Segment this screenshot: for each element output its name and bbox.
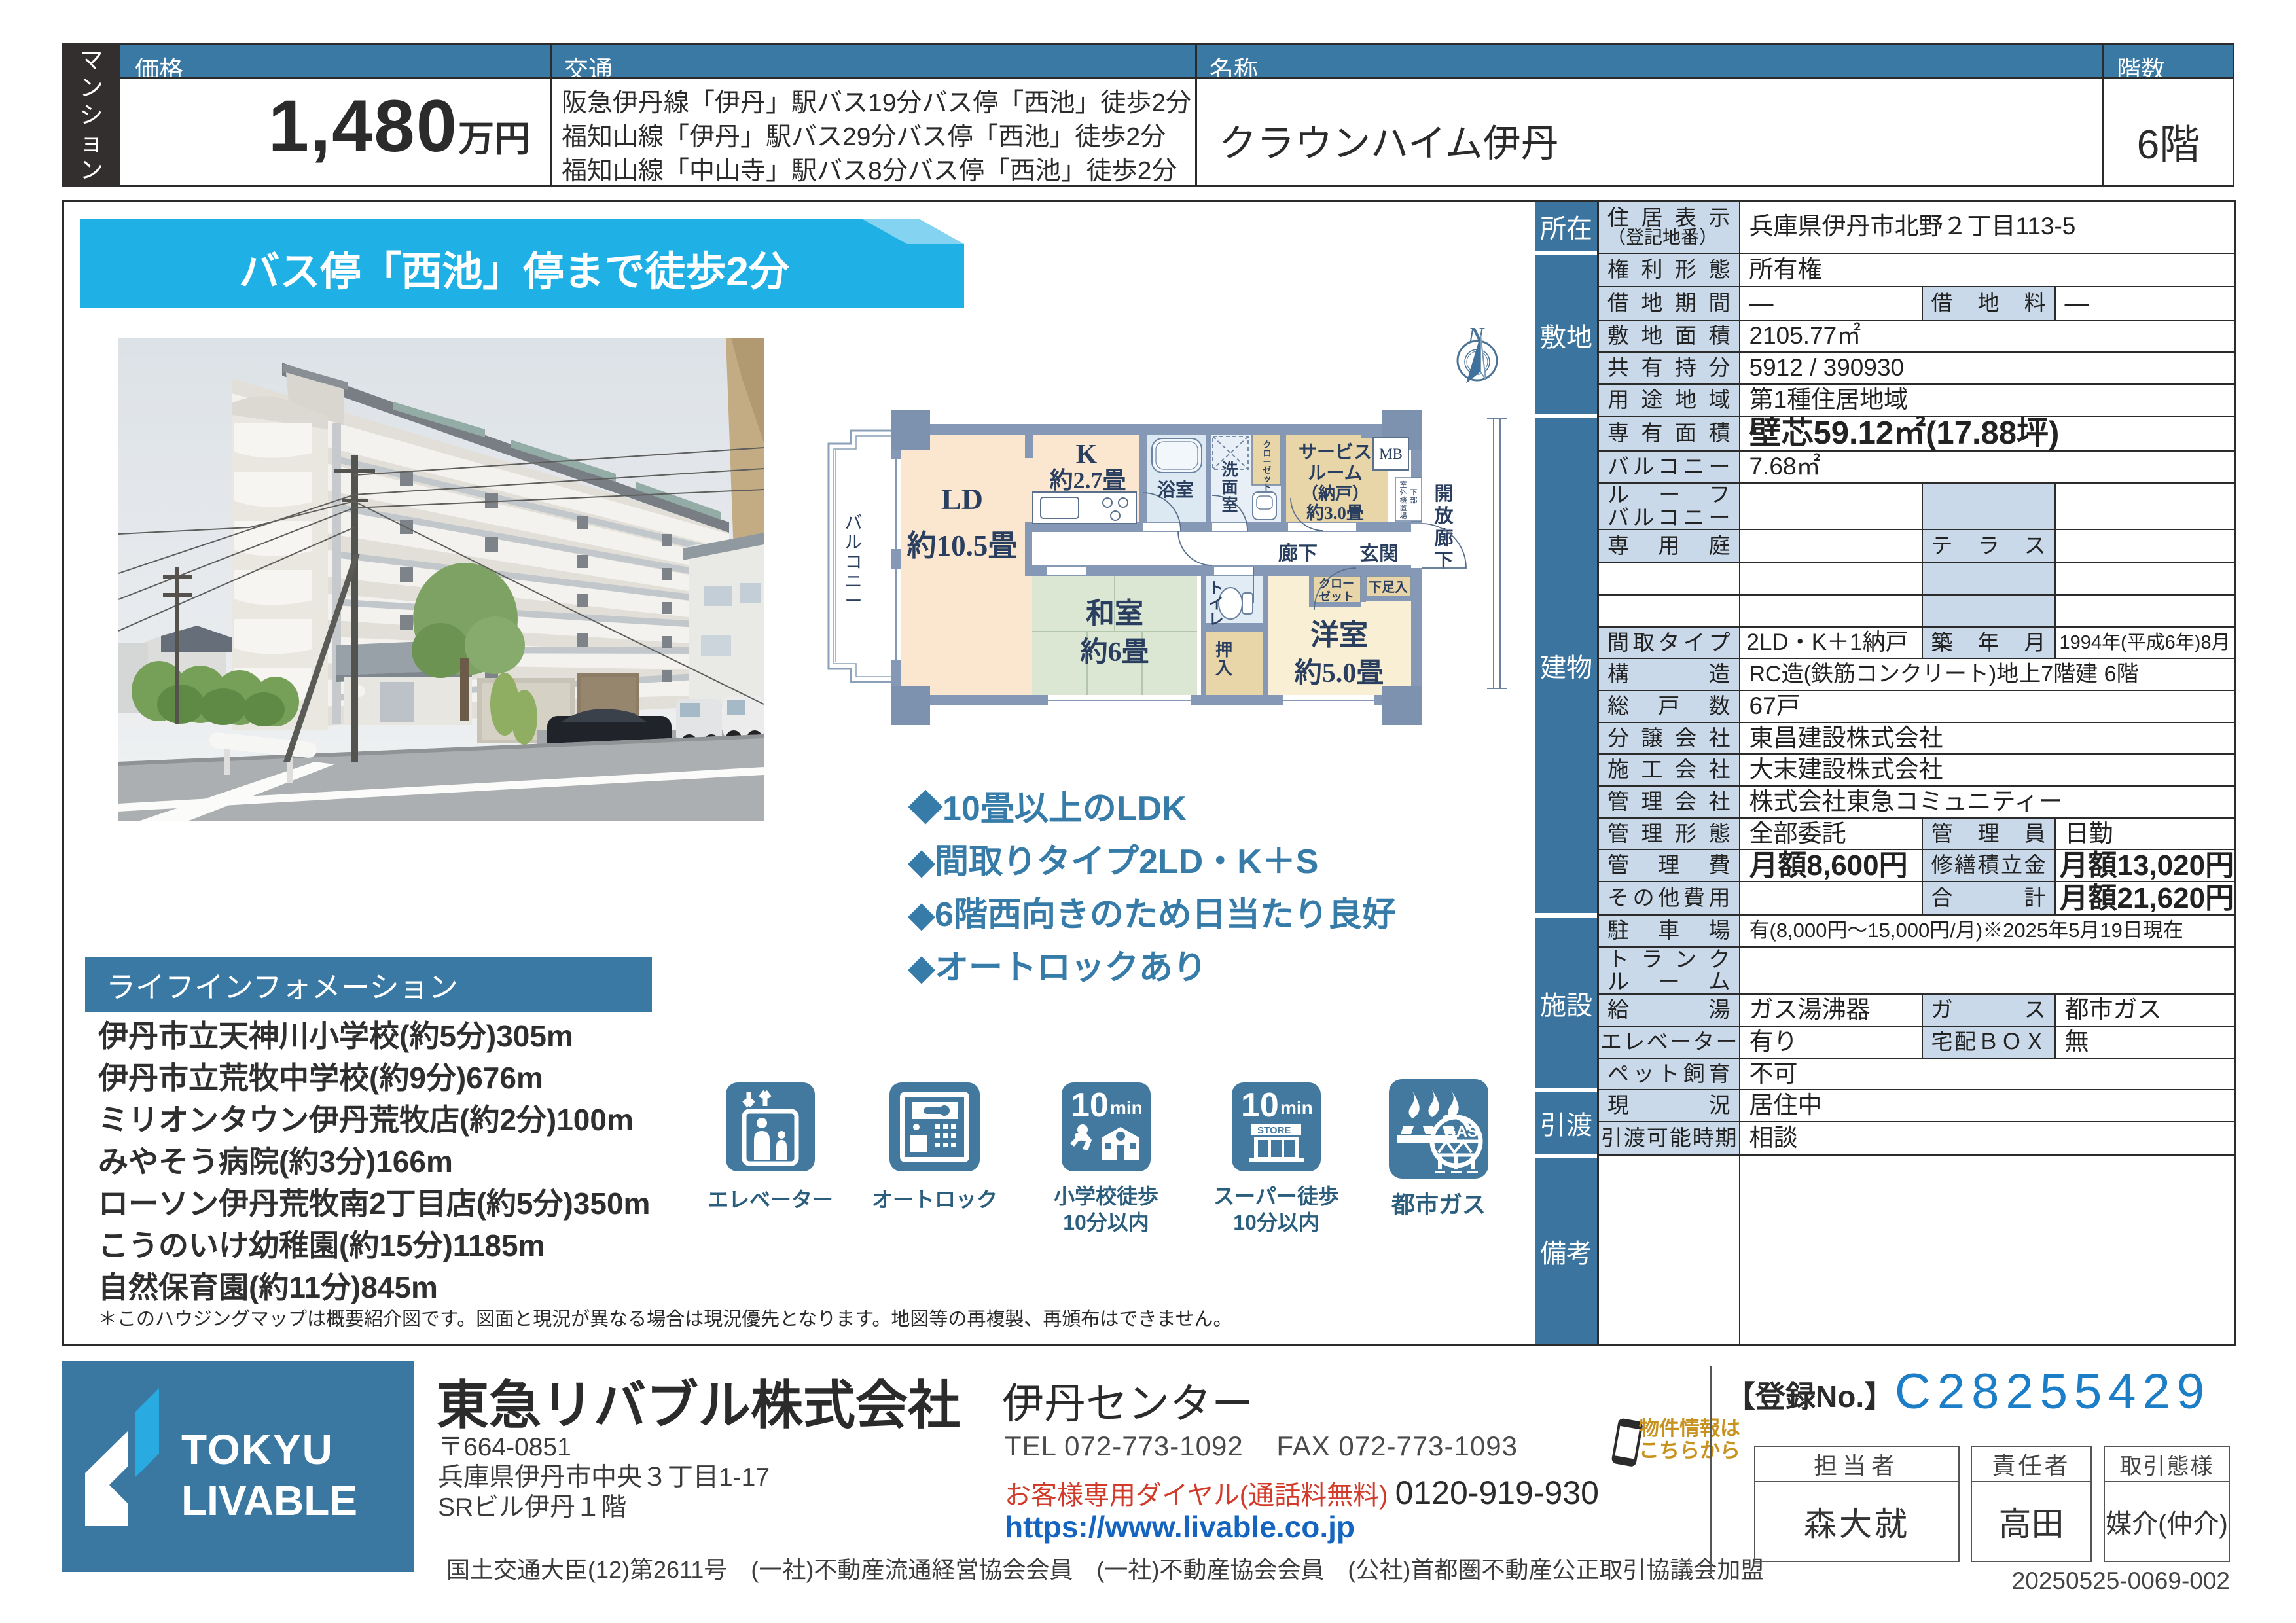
svg-text:LIVABLE: LIVABLE <box>181 1477 357 1524</box>
svg-text:STORE: STORE <box>1257 1125 1291 1136</box>
svg-text:10: 10 <box>1241 1086 1279 1124</box>
svg-text:浴室: 浴室 <box>1157 480 1194 501</box>
svg-text:外: 外 <box>1400 488 1407 497</box>
svg-text:下足入: 下足入 <box>1369 580 1408 595</box>
svg-text:10: 10 <box>1071 1086 1109 1124</box>
svg-text:min: min <box>1110 1097 1143 1118</box>
svg-text:放: 放 <box>1433 505 1453 527</box>
svg-text:押: 押 <box>1215 641 1232 660</box>
svg-text:開: 開 <box>1434 484 1453 505</box>
svg-text:和室: 和室 <box>1086 597 1143 630</box>
svg-text:LD: LD <box>941 482 983 516</box>
svg-text:ルーム: ルーム <box>1308 463 1362 484</box>
svg-text:GAS: GAS <box>1444 1123 1478 1141</box>
svg-text:ル: ル <box>845 533 863 552</box>
svg-text:玄関: 玄関 <box>1359 543 1399 565</box>
svg-text:約2.7畳: 約2.7畳 <box>1049 467 1126 493</box>
svg-text:N: N <box>1467 323 1485 348</box>
svg-text:面: 面 <box>1221 479 1238 497</box>
svg-text:バ: バ <box>845 513 863 533</box>
svg-text:約6畳: 約6畳 <box>1080 637 1149 668</box>
svg-text:レ: レ <box>1209 611 1224 628</box>
svg-text:MB: MB <box>1379 446 1403 462</box>
svg-text:置: 置 <box>1400 504 1407 512</box>
svg-text:廊: 廊 <box>1434 527 1453 549</box>
svg-text:サービス: サービス <box>1299 442 1372 463</box>
svg-text:min: min <box>1280 1097 1313 1118</box>
svg-text:部: 部 <box>1410 496 1418 505</box>
svg-text:約5.0畳: 約5.0畳 <box>1295 658 1384 688</box>
svg-text:廊下: 廊下 <box>1278 543 1318 565</box>
svg-text:ゼット: ゼット <box>1319 590 1354 603</box>
svg-text:洗: 洗 <box>1221 461 1238 479</box>
svg-text:約10.5畳: 約10.5畳 <box>907 529 1018 562</box>
svg-text:下: 下 <box>1410 489 1418 497</box>
svg-text:約3.0畳: 約3.0畳 <box>1306 503 1364 523</box>
svg-text:洋室: 洋室 <box>1310 619 1368 651</box>
svg-text:入: 入 <box>1215 659 1232 678</box>
svg-text:ト: ト <box>1263 482 1271 492</box>
svg-text:クロー: クロー <box>1319 577 1354 590</box>
svg-text:ニ: ニ <box>845 572 863 592</box>
svg-text:ト: ト <box>1209 580 1224 596</box>
svg-text:場: 場 <box>1400 512 1407 520</box>
svg-text:（納戸）: （納戸） <box>1301 484 1369 503</box>
svg-text:室: 室 <box>1221 496 1238 514</box>
svg-text:コ: コ <box>845 552 863 572</box>
svg-text:機: 機 <box>1400 496 1407 505</box>
svg-text:ー: ー <box>845 592 863 611</box>
svg-text:K: K <box>1076 440 1098 470</box>
svg-text:TOKYU: TOKYU <box>181 1426 334 1473</box>
svg-text:室: 室 <box>1400 480 1407 489</box>
svg-text:イ: イ <box>1209 596 1224 612</box>
